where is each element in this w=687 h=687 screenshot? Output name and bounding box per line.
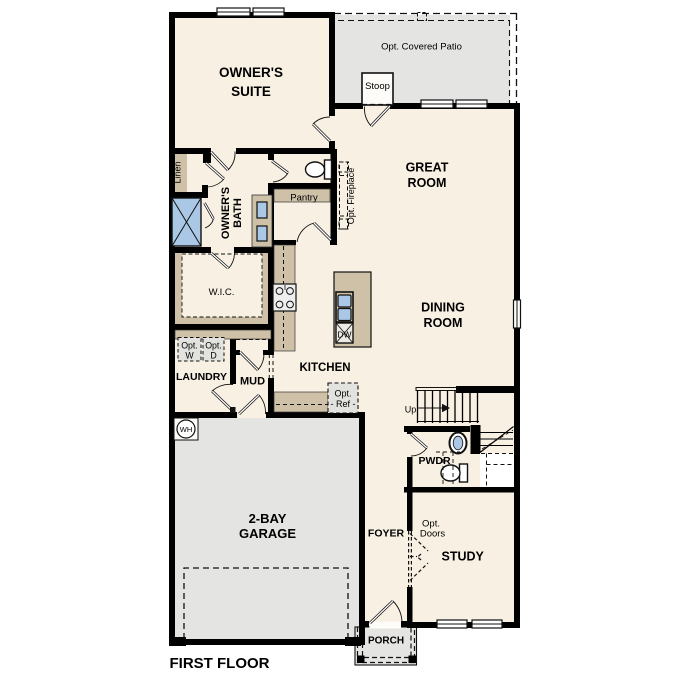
svg-text:Pantry: Pantry: [290, 193, 318, 204]
svg-text:OWNER'S: OWNER'S: [219, 65, 283, 80]
svg-text:GREAT: GREAT: [406, 161, 449, 175]
svg-text:Opt.: Opt.: [181, 341, 198, 351]
svg-text:W.I.C.: W.I.C.: [209, 287, 235, 298]
svg-text:OWNER'S: OWNER'S: [220, 187, 232, 239]
svg-text:Stoop: Stoop: [365, 81, 390, 92]
svg-text:ROOM: ROOM: [408, 176, 447, 190]
svg-text:Doors: Doors: [420, 529, 446, 540]
svg-text:BATH: BATH: [232, 198, 244, 228]
svg-text:- Ref -: - Ref -: [330, 399, 355, 409]
svg-text:GARAGE: GARAGE: [239, 526, 296, 541]
svg-text:Opt.: Opt.: [334, 389, 351, 399]
svg-text:PORCH: PORCH: [368, 636, 404, 647]
svg-text:Opt. Covered Patio: Opt. Covered Patio: [381, 42, 462, 53]
svg-text:PWDR: PWDR: [418, 455, 450, 467]
svg-text:Linen: Linen: [173, 161, 183, 183]
svg-text:STUDY: STUDY: [442, 550, 485, 564]
svg-text:WH: WH: [180, 425, 193, 434]
svg-text:MUD: MUD: [240, 376, 265, 388]
svg-text:Opt.: Opt.: [205, 341, 222, 351]
svg-text:DW: DW: [337, 330, 351, 340]
svg-text:LAUNDRY: LAUNDRY: [176, 371, 227, 383]
svg-text:FIRST FLOOR: FIRST FLOOR: [170, 655, 270, 672]
svg-text:KITCHEN: KITCHEN: [299, 362, 350, 374]
svg-text:DINING: DINING: [421, 301, 465, 315]
svg-text:ROOM: ROOM: [424, 316, 463, 330]
svg-text:Up: Up: [405, 405, 417, 415]
svg-text:W: W: [185, 351, 194, 361]
svg-text:Opt. Fireplace: Opt. Fireplace: [346, 168, 356, 225]
svg-text:SUITE: SUITE: [231, 84, 271, 99]
svg-text:D: D: [210, 351, 216, 361]
svg-text:FOYER: FOYER: [368, 528, 405, 540]
svg-text:2-BAY: 2-BAY: [249, 511, 287, 526]
